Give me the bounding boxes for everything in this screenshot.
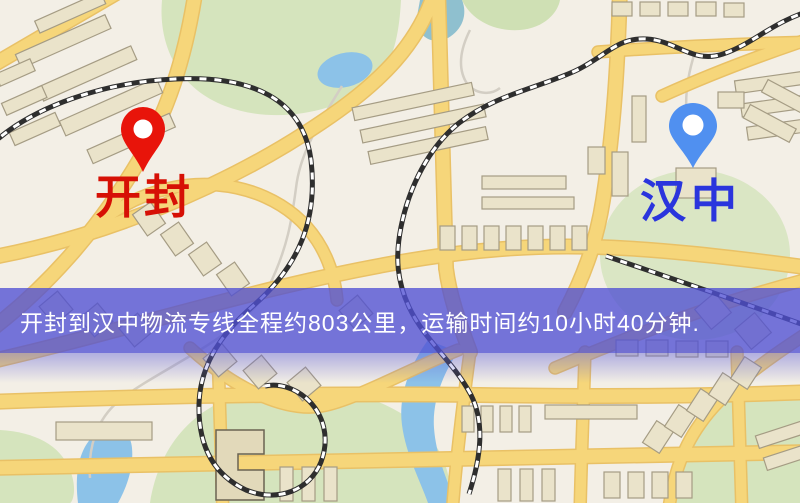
origin-pin-icon [116,104,170,174]
origin-label: 开封 [95,174,193,220]
origin-marker[interactable] [116,104,170,179]
map-view[interactable]: 开封 汉中 开封到汉中物流专线全程约803公里，运输时间约10小时40分钟. [0,0,800,503]
map-background [0,0,800,503]
destination-label: 汉中 [640,178,742,224]
destination-pin-icon [664,100,722,170]
destination-marker[interactable] [664,100,722,175]
route-banner-text: 开封到汉中物流专线全程约803公里，运输时间约10小时40分钟. [0,304,700,338]
route-banner: 开封到汉中物流专线全程约803公里，运输时间约10小时40分钟. [0,288,800,353]
